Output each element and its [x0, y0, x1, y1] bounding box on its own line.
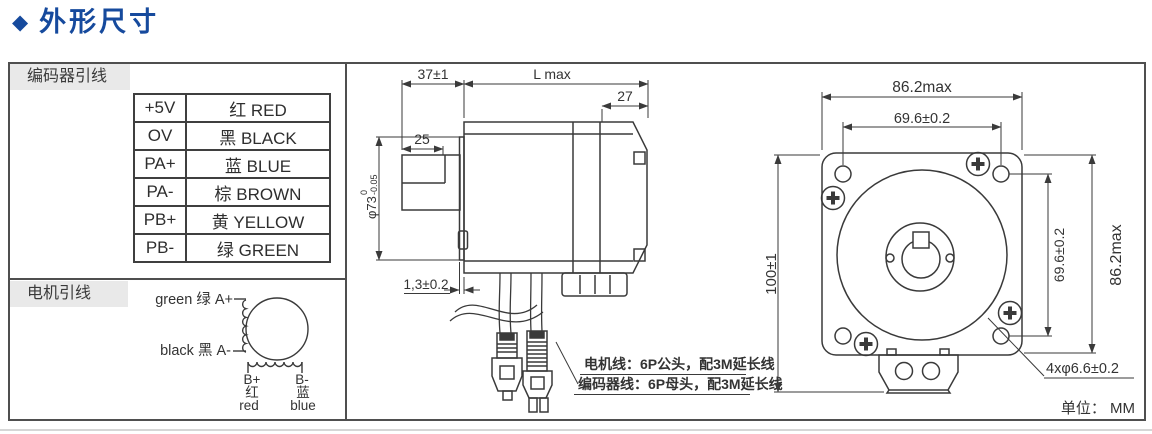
- bottom-connector-housing: [879, 349, 958, 393]
- dim-hole-pitch-vertical: 69.6±0.2: [1051, 228, 1067, 283]
- label-a-plus: green 绿 A+: [155, 291, 233, 308]
- dimension-drawings: 37±1 L max 27 25 φ73 0 -0.05 1,3±0.2 电机线…: [345, 62, 1146, 421]
- table-row: PA+ 蓝 BLUE: [134, 150, 330, 178]
- rotor-circle: [246, 298, 308, 360]
- motor-winding-diagram: green 绿 A+ black 黑 A- B+ B- 红 蓝 red blue: [130, 281, 340, 417]
- dim-overall-height: 100±1: [763, 253, 780, 295]
- mounting-flange: [822, 153, 1022, 355]
- page-title: ◆ 外形尺寸: [12, 6, 159, 38]
- pin-cell: PA-: [134, 178, 186, 206]
- front-view-dim-labels: 86.2max 69.6±0.2 100±1 69.6±0.2 86.2max …: [763, 79, 1135, 417]
- dim-boss-thickness: 1,3±0.2: [404, 277, 449, 292]
- pin-cell: PB-: [134, 234, 186, 262]
- wire-color-cell: 黑 BLACK: [186, 122, 330, 150]
- dim-flat-length: 25: [414, 131, 430, 147]
- dim-hole-diameter: 4xφ6.6±0.2: [1046, 361, 1119, 377]
- motor-body-outline: [464, 122, 647, 273]
- hole-dia-leader: [988, 318, 1044, 376]
- wire-color-cell: 红 RED: [186, 94, 330, 122]
- encoder-leads-header: 编码器引线: [10, 64, 130, 90]
- callout-motor-cable: 电机线：6P公头，配3M延长线: [584, 356, 775, 372]
- dim-height-max: 86.2max: [1108, 224, 1125, 285]
- diamond-icon: ◆: [12, 12, 28, 33]
- encoder-wiring-table: +5V 红 RED OV 黑 BLACK PA+ 蓝 BLUE PA- 棕 BR…: [133, 93, 331, 263]
- wire-color-cell: 蓝 BLUE: [186, 150, 330, 178]
- dim-hole-pitch-horizontal: 69.6±0.2: [894, 111, 950, 127]
- table-row: PB- 绿 GREEN: [134, 234, 330, 262]
- wire-color-cell: 黄 YELLOW: [186, 206, 330, 234]
- callout-encoder-cable: 编码器线：6P母头，配3M延长线: [578, 376, 783, 392]
- dim-pilot-diameter: φ73: [364, 196, 379, 219]
- table-row: OV 黑 BLACK: [134, 122, 330, 150]
- encoder-cable-connector: [523, 331, 552, 412]
- dim-body-length: L max: [533, 66, 571, 82]
- winding-labels: green 绿 A+ black 黑 A- B+ B- 红 蓝 red blue: [155, 291, 316, 413]
- callout-leader: [556, 342, 578, 384]
- panel-divider: [8, 278, 345, 280]
- table-row: PA- 棕 BROWN: [134, 178, 330, 206]
- screw-icon: [999, 302, 1022, 325]
- dim-shaft-length: 37±1: [417, 66, 448, 82]
- label-b-minus-en: blue: [290, 398, 316, 413]
- pin-cell: +5V: [134, 94, 186, 122]
- unit-label: 单位： MM: [1061, 400, 1135, 417]
- page-title-text: 外形尺寸: [39, 6, 159, 38]
- label-b-plus-en: red: [239, 398, 259, 413]
- drawing-panel: 编码器引线 +5V 红 RED OV 黑 BLACK PA+ 蓝 BLUE PA…: [8, 62, 1146, 421]
- wire-color-cell: 棕 BROWN: [186, 178, 330, 206]
- pin-cell: OV: [134, 122, 186, 150]
- pin-cell: PA+: [134, 150, 186, 178]
- screw-icon: [967, 153, 990, 176]
- screw-icon: [855, 333, 878, 356]
- dim-pilot-tol-lower: -0.05: [369, 174, 379, 195]
- assembly-screws: [822, 153, 1022, 356]
- mounting-holes: [835, 166, 1009, 344]
- front-view-dimension-lines: [774, 92, 1134, 392]
- screw-icon: [822, 187, 845, 210]
- table-row: +5V 红 RED: [134, 94, 330, 122]
- shaft-key: [913, 232, 929, 248]
- dim-width-max: 86.2max: [892, 79, 952, 96]
- wire-color-cell: 绿 GREEN: [186, 234, 330, 262]
- table-row: PB+ 黄 YELLOW: [134, 206, 330, 234]
- motor-cable-connector: [492, 333, 522, 400]
- winding-shapes: [233, 298, 308, 373]
- side-view-dimension-lines: [376, 80, 750, 395]
- motor-leads-header: 电机引线: [10, 281, 128, 307]
- pin-cell: PB+: [134, 206, 186, 234]
- label-a-minus: black 黑 A-: [160, 343, 231, 359]
- motor-front-view: [822, 153, 1023, 394]
- side-view-dim-labels: 37±1 L max 27 25 φ73 0 -0.05 1,3±0.2 电机线…: [359, 66, 783, 392]
- bottom-divider: [0, 429, 1152, 431]
- body-circle: [837, 170, 1007, 340]
- dim-rear-length: 27: [617, 88, 633, 104]
- dim-pilot-tol-upper: 0: [359, 190, 369, 195]
- phase-b-coil: [248, 362, 302, 367]
